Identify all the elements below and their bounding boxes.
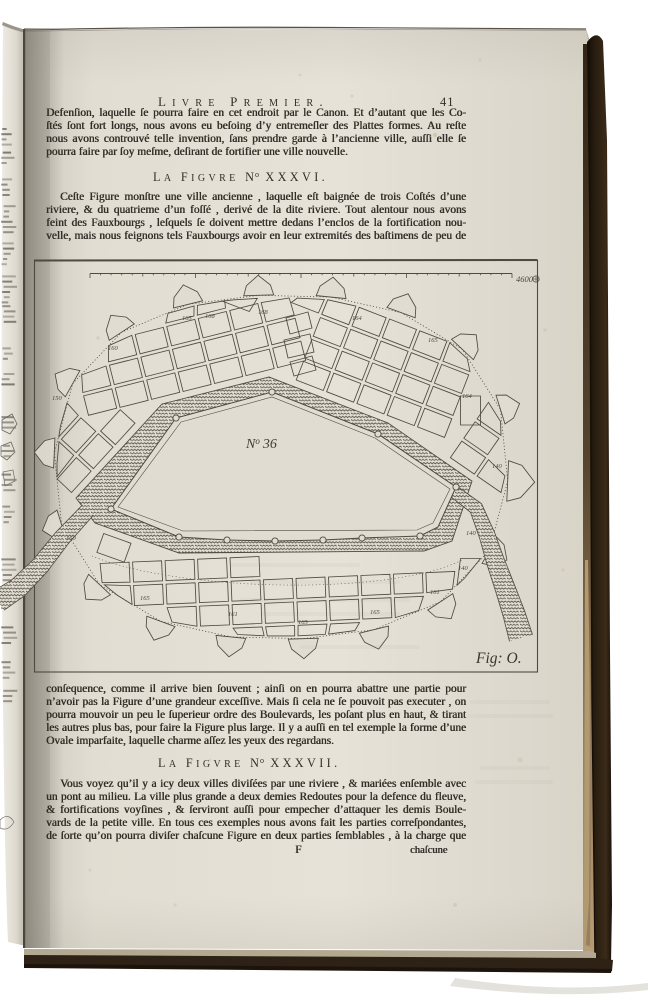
svg-text:160: 160 — [108, 345, 119, 352]
svg-text:164: 164 — [462, 393, 473, 400]
svg-text:Fig: O.: Fig: O. — [475, 650, 522, 667]
svg-text:4600: 4600 — [516, 274, 534, 284]
svg-text:161: 161 — [228, 611, 238, 618]
svg-text:165: 165 — [182, 315, 193, 322]
svg-text:150: 150 — [52, 395, 63, 402]
svg-text:168: 168 — [258, 309, 269, 316]
svg-text:165: 165 — [140, 595, 151, 602]
svg-text:165: 165 — [428, 337, 439, 344]
svg-text:164: 164 — [352, 315, 363, 322]
svg-text:160: 160 — [66, 535, 77, 542]
svg-text:140: 140 — [466, 530, 477, 537]
svg-text:140: 140 — [458, 565, 469, 572]
svg-text:165: 165 — [298, 619, 309, 626]
svg-text:168: 168 — [205, 313, 216, 320]
svg-text:140: 140 — [492, 463, 503, 470]
svg-text:161: 161 — [430, 589, 440, 596]
